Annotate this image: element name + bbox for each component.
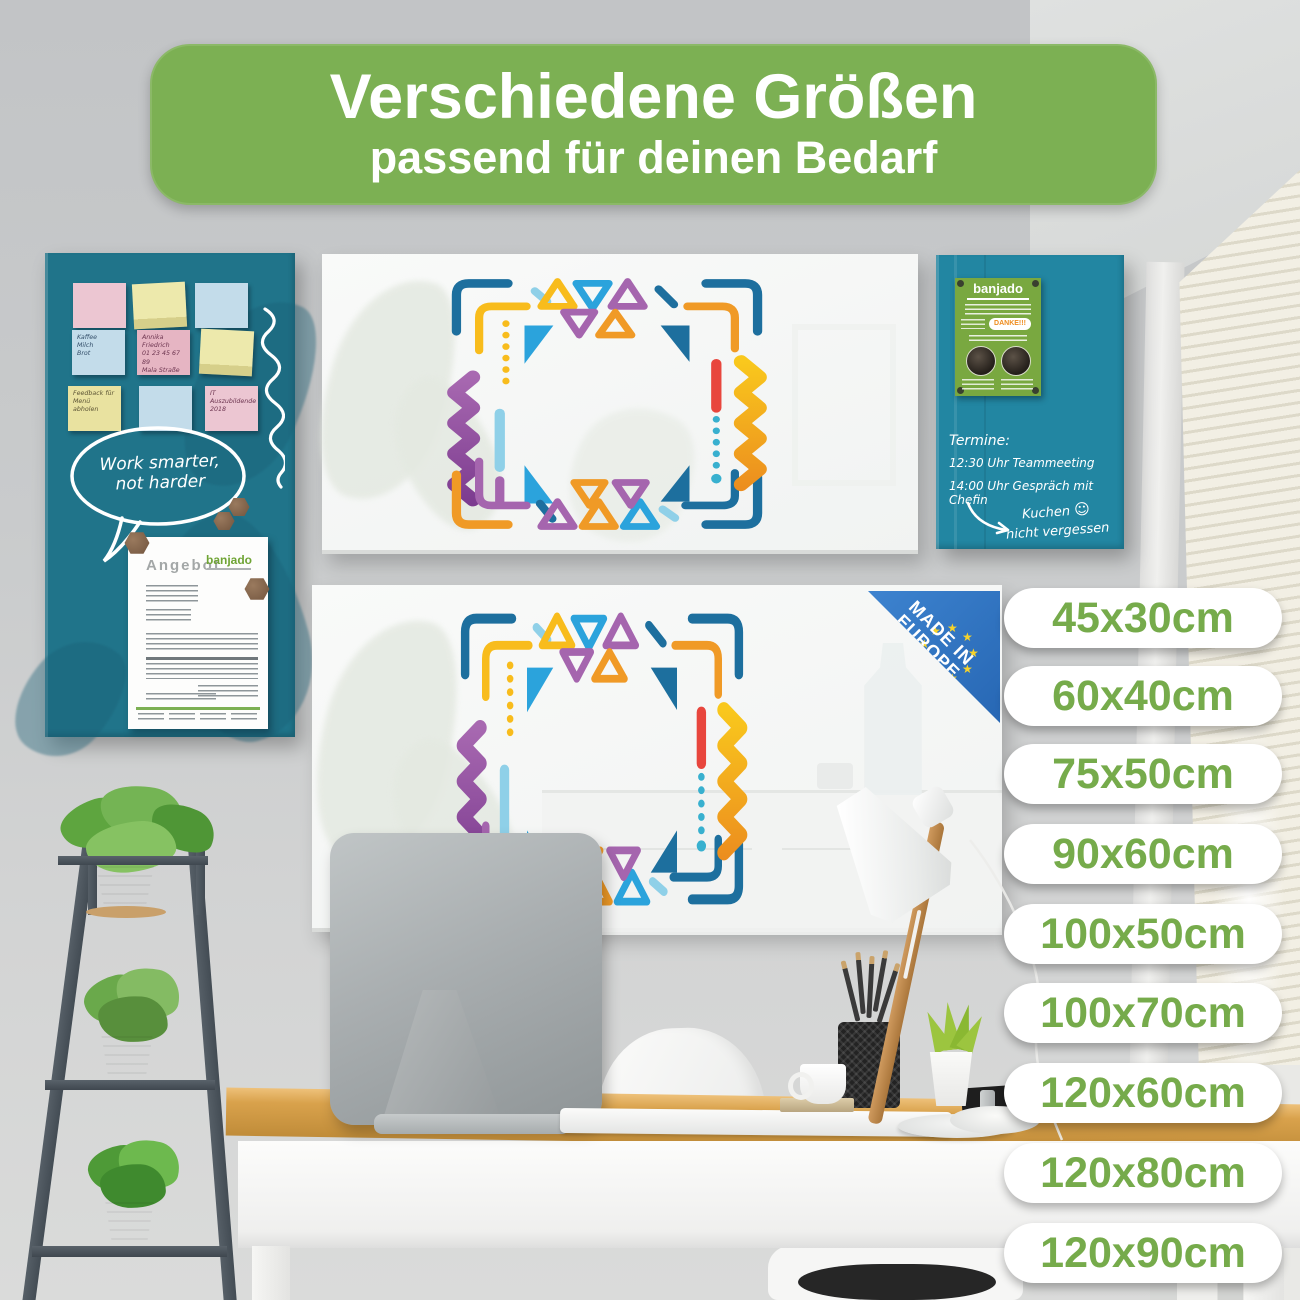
hexagon-magnet [244, 577, 270, 601]
svg-text:★: ★ [930, 668, 941, 682]
monitor-foot [374, 1114, 570, 1134]
plant-pot [98, 1036, 156, 1086]
document-text-block [146, 693, 216, 701]
banjado-logo: banjado [206, 553, 252, 567]
document-text-block [146, 633, 258, 651]
banjado-flyer: banjado DANKE!!! [955, 278, 1041, 396]
magnetic-board-left: Kaffee Milch Brot Annika Friedrich 01 23… [45, 253, 295, 737]
flyer-text [965, 304, 1031, 315]
offer-document: Angebot banjado [128, 537, 268, 729]
chair-cushion [798, 1264, 996, 1300]
glass-board-top [322, 254, 918, 554]
plant-pot [102, 1202, 157, 1250]
size-pill: 45x30cm [1004, 588, 1282, 648]
sticky-note-contact: Annika Friedrich 01 23 45 67 89 Mala Str… [137, 330, 190, 375]
geometric-frame-motif [442, 270, 772, 538]
document-text-block [146, 585, 198, 603]
shelf-bar [58, 856, 208, 865]
size-pill: 120x90cm [1004, 1223, 1282, 1283]
document-footer-col [200, 713, 226, 723]
sticky-note [132, 282, 187, 330]
smiley-doodle: ☺ [1074, 500, 1091, 519]
flyer-text [969, 335, 1027, 343]
magnetic-board-right: banjado DANKE!!! Termine: 12:30 Uhr Team… [936, 255, 1124, 549]
shelf-rail [22, 846, 95, 1300]
leaf-shadow [0, 619, 146, 776]
speech-bubble-text: Work smarter, not harder [84, 450, 235, 495]
size-pill: 60x40cm [1004, 666, 1282, 726]
size-pill: 100x50cm [1004, 904, 1282, 964]
size-pill: 90x60cm [1004, 824, 1282, 884]
document-footer-col [169, 713, 195, 723]
sticky-note-shopping: Kaffee Milch Brot [72, 330, 125, 375]
shelf-bar [32, 1246, 227, 1257]
flyer-text [961, 319, 985, 329]
wood-saucer [86, 906, 166, 918]
frame-reflection [792, 324, 896, 486]
flyer-tagline [967, 298, 1029, 300]
product-scene: Verschiedene Größen passend für deinen B… [0, 0, 1300, 1300]
size-pill: 100x70cm [1004, 983, 1282, 1043]
shelf-bar [45, 1080, 215, 1090]
logo-tagline [207, 568, 251, 570]
size-pill: 120x60cm [1004, 1063, 1282, 1123]
flyer-brand: banjado [955, 281, 1041, 296]
desk-leg [252, 1246, 290, 1300]
reminder-text: Kuchen ☺ [1021, 500, 1090, 523]
size-pill: 75x50cm [1004, 744, 1282, 804]
flyer-danke-box: DANKE!!! [989, 318, 1031, 330]
svg-text:★: ★ [919, 655, 930, 669]
banner-subtitle: passend für deinen Bedarf [370, 131, 938, 185]
flyer-footer-col [1001, 379, 1033, 392]
document-text-block [146, 609, 191, 623]
keyboard [560, 1108, 952, 1137]
document-footer-col [138, 713, 164, 723]
sticky-note [73, 283, 126, 328]
schedule-title: Termine: [949, 433, 1010, 449]
document-table-rows [146, 663, 258, 679]
banner-title: Verschiedene Größen [330, 64, 978, 130]
box-reflection [817, 763, 853, 789]
size-pill: 120x80cm [1004, 1143, 1282, 1203]
magnet-dot [1032, 387, 1039, 394]
vase-reflection [857, 643, 929, 795]
sticky-note [199, 329, 254, 377]
document-table-header [146, 657, 258, 660]
dog-photo [1001, 346, 1031, 376]
coffee-cup [800, 1064, 846, 1104]
headline-banner: Verschiedene Größen passend für deinen B… [150, 44, 1157, 205]
document-footer-rule [136, 707, 260, 710]
document-footer-col [231, 713, 257, 723]
flyer-footer-col [962, 379, 994, 392]
schedule-line: 12:30 Uhr Teammeeting [949, 456, 1095, 470]
reminder-text: nicht vergessen [1006, 520, 1110, 542]
pencil [855, 952, 865, 1014]
dog-photo [966, 346, 996, 376]
sticky-note [195, 283, 248, 328]
